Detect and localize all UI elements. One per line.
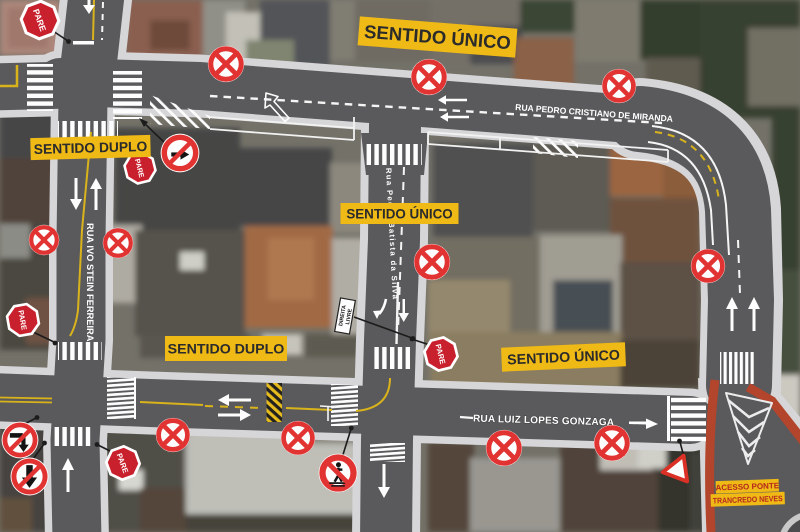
svg-text:SENTIDO DUPLO: SENTIDO DUPLO bbox=[168, 342, 285, 358]
svg-text:RUA IVO STEIN FERREIRA: RUA IVO STEIN FERREIRA bbox=[85, 223, 95, 342]
svg-text:SENTIDO ÚNICO: SENTIDO ÚNICO bbox=[346, 206, 452, 221]
svg-text:SENTIDO DUPLO: SENTIDO DUPLO bbox=[34, 139, 148, 157]
